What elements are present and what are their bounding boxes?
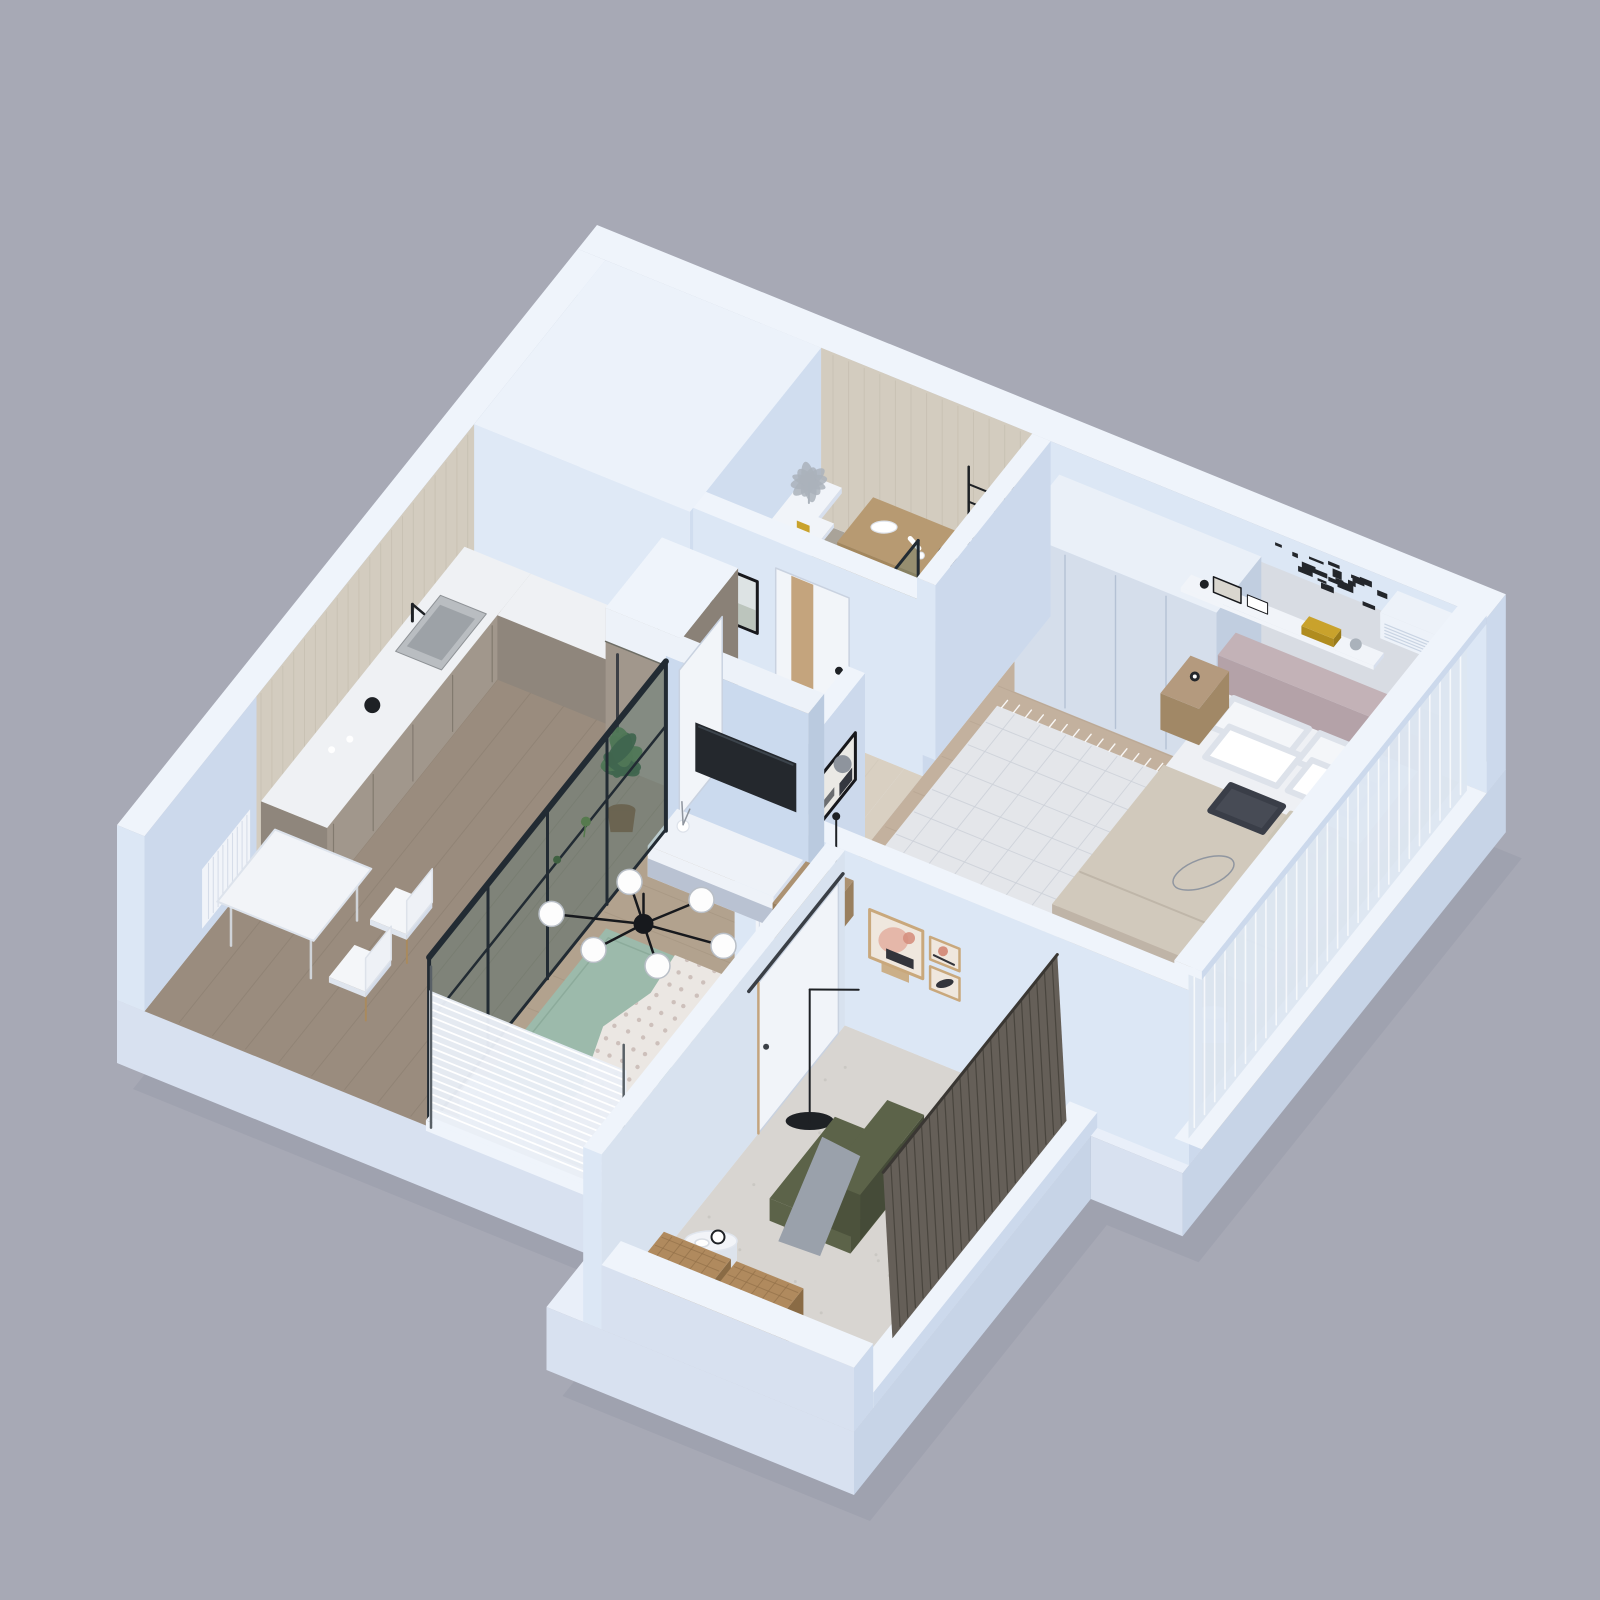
floor-plan-stage: 3D isometric cutaway render of a one-bed…: [0, 0, 1600, 1600]
floor-plan-render: 3D isometric cutaway render of a one-bed…: [0, 0, 1600, 1600]
